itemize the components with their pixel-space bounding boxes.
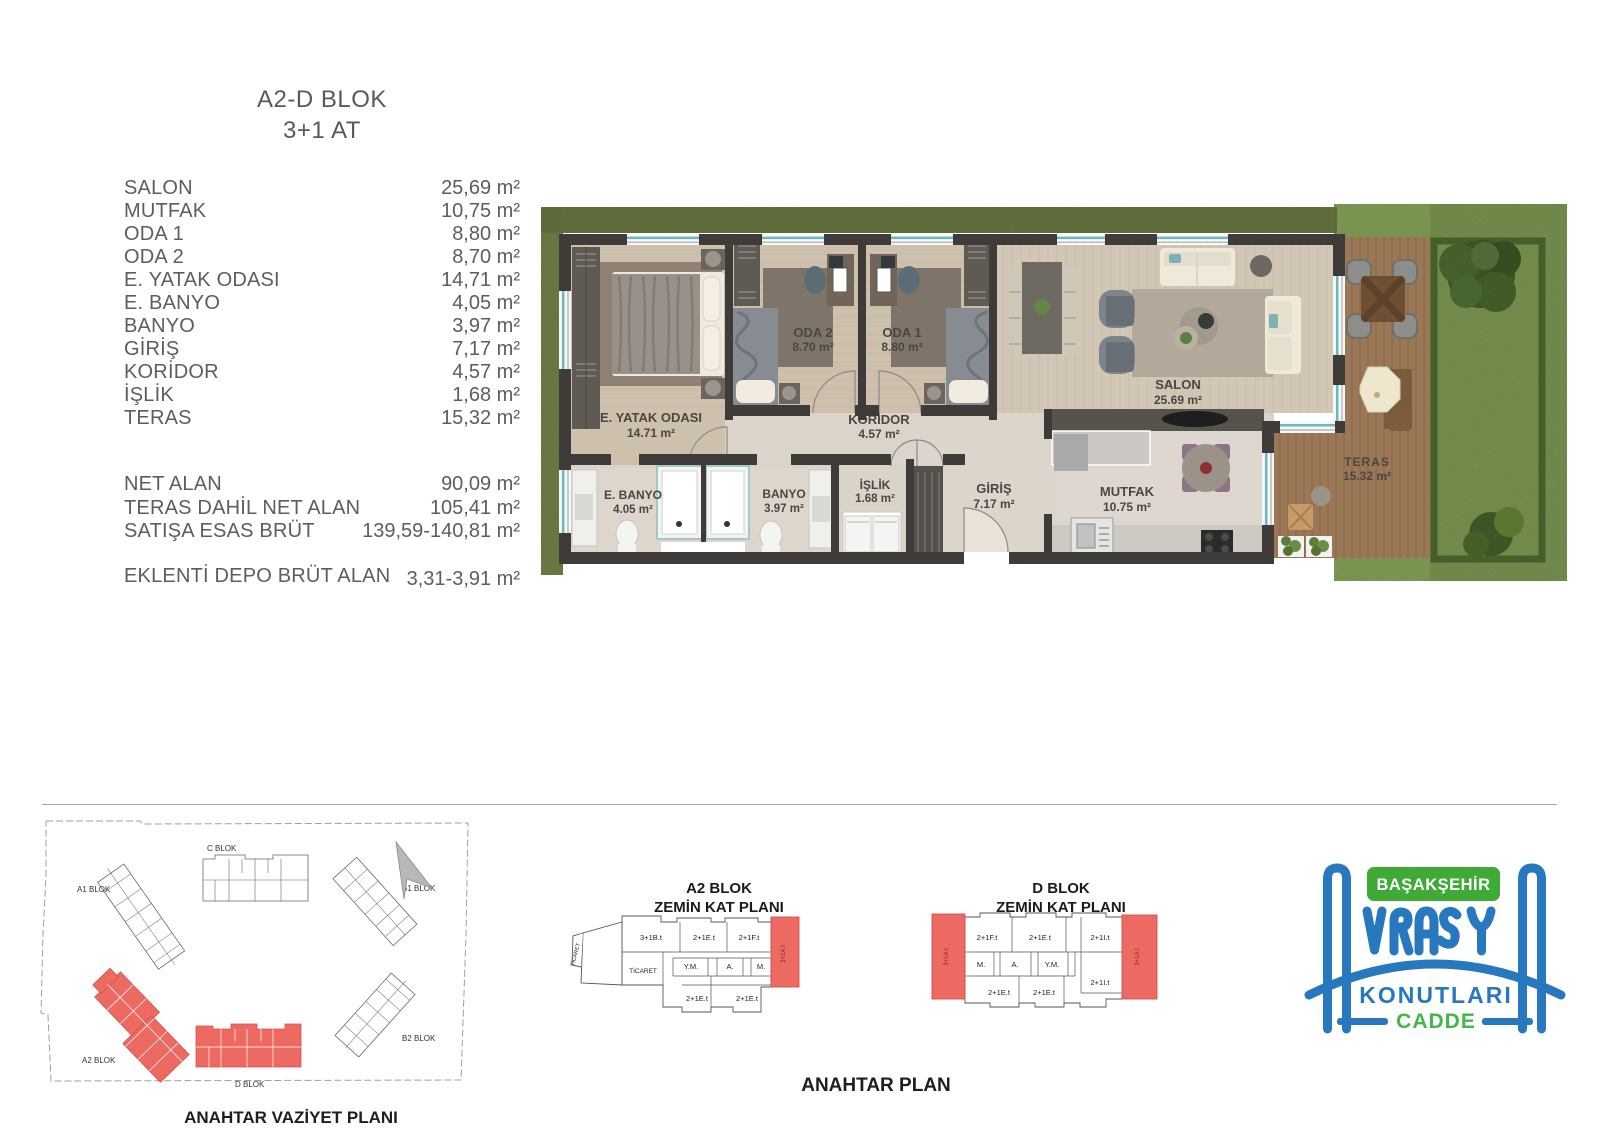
- svg-text:8.80 m²: 8.80 m²: [881, 340, 922, 354]
- svg-text:BANYO: BANYO: [762, 487, 805, 501]
- svg-text:ODA 2: ODA 2: [793, 325, 832, 340]
- svg-text:3+1B.t: 3+1B.t: [640, 933, 663, 942]
- svg-text:2+1E.t: 2+1E.t: [686, 994, 709, 1003]
- svg-text:2+1F.t: 2+1F.t: [739, 933, 761, 942]
- svg-text:14.71 m²: 14.71 m²: [627, 426, 675, 440]
- svg-text:B2 BLOK: B2 BLOK: [402, 1034, 436, 1043]
- svg-text:KONUTLARI: KONUTLARI: [1359, 982, 1512, 1008]
- svg-text:10.75 m²: 10.75 m²: [1103, 500, 1151, 514]
- svg-text:B1 BLOK: B1 BLOK: [402, 884, 436, 893]
- svg-text:2+1E.t: 2+1E.t: [1033, 988, 1056, 997]
- svg-text:2+1E.t: 2+1E.t: [988, 988, 1011, 997]
- svg-text:4.05 m²: 4.05 m²: [613, 504, 653, 516]
- svg-text:ODA 1: ODA 1: [882, 325, 921, 340]
- svg-text:M.: M.: [757, 962, 765, 971]
- svg-text:Y.M.: Y.M.: [684, 962, 698, 971]
- svg-text:TERAS: TERAS: [1344, 455, 1390, 469]
- svg-text:2+1E.t: 2+1E.t: [736, 994, 759, 1003]
- svg-text:A2 BLOK: A2 BLOK: [82, 1056, 116, 1065]
- svg-text:2+1F.t: 2+1F.t: [977, 933, 999, 942]
- svg-text:D BLOK: D BLOK: [1032, 880, 1090, 897]
- svg-text:BAŞAKŞEHİR: BAŞAKŞEHİR: [1376, 876, 1490, 894]
- svg-text:2+1I.t: 2+1I.t: [1091, 933, 1111, 942]
- svg-text:3.97 m²: 3.97 m²: [764, 503, 804, 515]
- svg-text:1.68 m²: 1.68 m²: [855, 493, 895, 505]
- svg-text:E. YATAK ODASI: E. YATAK ODASI: [600, 410, 702, 425]
- svg-text:Y.M.: Y.M.: [1045, 960, 1059, 969]
- svg-text:A1 BLOK: A1 BLOK: [77, 885, 111, 894]
- svg-text:4.57 m²: 4.57 m²: [858, 427, 899, 441]
- svg-text:İŞLİK: İŞLİK: [860, 477, 891, 492]
- svg-text:7.17 m²: 7.17 m²: [973, 497, 1014, 511]
- svg-text:E. BANYO: E. BANYO: [604, 488, 662, 502]
- svg-text:A2 BLOK: A2 BLOK: [686, 880, 752, 897]
- svg-text:25.69 m²: 25.69 m²: [1154, 393, 1202, 407]
- svg-text:8.70 m²: 8.70 m²: [792, 340, 833, 354]
- svg-text:2+1E.t: 2+1E.t: [1029, 933, 1052, 942]
- svg-text:ZEMİN KAT PLANI: ZEMİN KAT PLANI: [654, 899, 784, 916]
- svg-text:C BLOK: C BLOK: [207, 844, 237, 853]
- svg-text:2+1E.t: 2+1E.t: [693, 933, 716, 942]
- svg-text:A.: A.: [1011, 960, 1018, 969]
- svg-text:A.: A.: [726, 962, 733, 971]
- svg-text:15.32 m²: 15.32 m²: [1343, 469, 1391, 483]
- svg-text:TİCARET: TİCARET: [629, 966, 657, 975]
- svg-text:2+1I.t: 2+1I.t: [1091, 978, 1111, 987]
- svg-text:3+1A.t: 3+1A.t: [1135, 948, 1141, 966]
- svg-text:SALON: SALON: [1155, 377, 1201, 392]
- svg-text:CADDE: CADDE: [1396, 1010, 1476, 1033]
- svg-text:3+1A.t: 3+1A.t: [944, 948, 950, 966]
- svg-text:GİRİŞ: GİRİŞ: [976, 481, 1012, 496]
- svg-text:3+1A.t: 3+1A.t: [781, 945, 787, 963]
- svg-text:M.: M.: [977, 960, 985, 969]
- svg-text:D BLOK: D BLOK: [235, 1080, 265, 1089]
- svg-text:MUTFAK: MUTFAK: [1100, 484, 1155, 499]
